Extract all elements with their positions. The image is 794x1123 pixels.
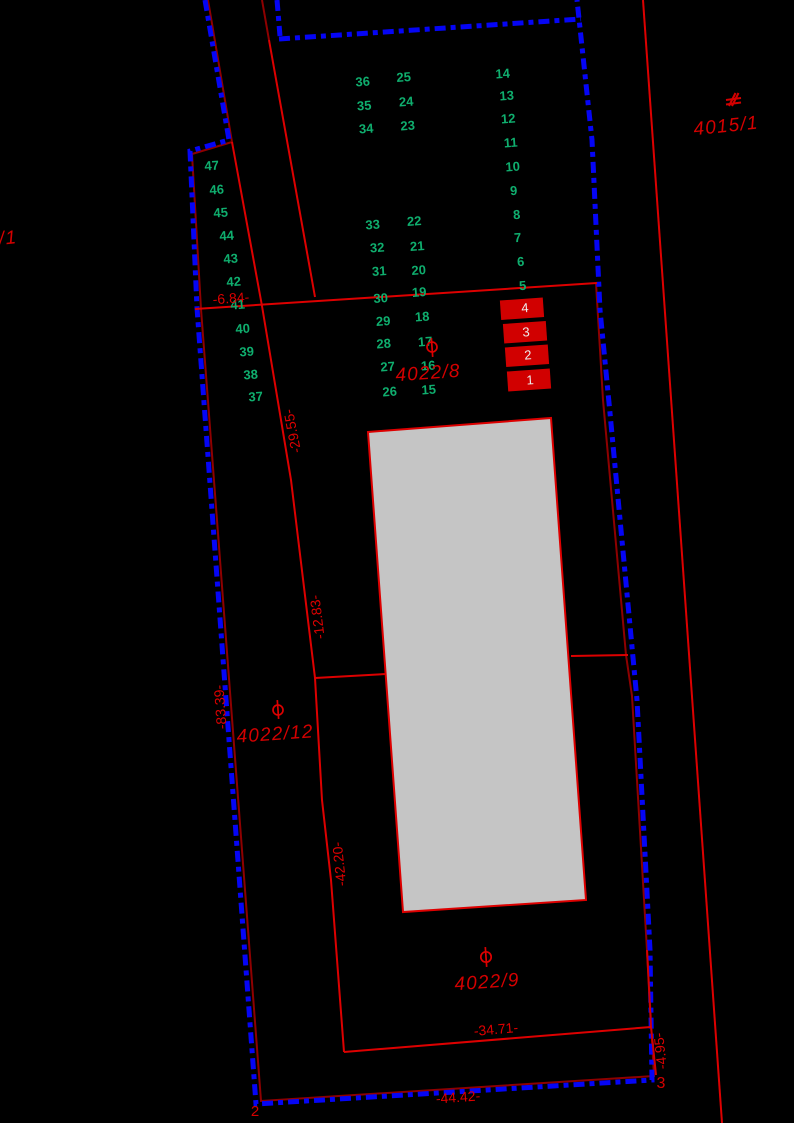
svg-text:34: 34 [358,120,374,136]
svg-text:31: 31 [371,263,386,279]
svg-text:42: 42 [226,274,241,290]
svg-text:36: 36 [355,74,370,90]
svg-text:3: 3 [522,324,530,339]
svg-text:13: 13 [499,88,514,104]
svg-text:2: 2 [524,347,532,362]
svg-text:2: 2 [251,1103,259,1120]
svg-text:-83.39-: -83.39- [210,684,229,730]
svg-text:26: 26 [382,384,397,400]
svg-text:47: 47 [204,158,219,174]
svg-text:44: 44 [219,227,235,243]
svg-text:/1: /1 [0,227,18,250]
svg-text:11: 11 [503,135,518,151]
svg-text:12: 12 [500,111,515,127]
svg-text:3: 3 [657,1075,666,1092]
svg-text:10: 10 [505,159,520,175]
svg-text:-44.42-: -44.42- [435,1087,481,1106]
svg-text:29: 29 [375,313,390,329]
svg-text:40: 40 [235,321,250,337]
svg-text:30: 30 [373,290,388,306]
svg-text:7: 7 [514,230,522,245]
svg-text:37: 37 [248,389,263,405]
svg-text:24: 24 [398,93,414,109]
svg-text:19: 19 [411,284,426,300]
svg-text:35: 35 [356,98,371,114]
svg-text:46: 46 [209,182,224,198]
svg-text:45: 45 [213,205,228,221]
svg-text:33: 33 [365,217,380,233]
svg-text:39: 39 [239,344,254,360]
svg-text:25: 25 [396,69,411,85]
svg-text:8: 8 [513,207,521,222]
svg-text:18: 18 [414,309,429,325]
svg-text:23: 23 [400,118,415,134]
svg-text:9: 9 [510,183,518,198]
svg-text:27: 27 [380,359,395,375]
svg-text:22: 22 [406,213,421,229]
svg-text:14: 14 [495,65,511,81]
svg-text:4: 4 [521,300,529,315]
svg-text:38: 38 [243,367,258,383]
svg-text:43: 43 [223,251,238,267]
svg-text:-6.84-: -6.84- [212,289,250,308]
svg-text:32: 32 [369,240,384,256]
svg-text:1: 1 [526,372,534,387]
svg-text:21: 21 [409,238,424,254]
svg-text:20: 20 [411,262,426,278]
svg-text:28: 28 [376,336,391,352]
svg-text:6: 6 [517,254,525,269]
svg-text:5: 5 [519,278,527,293]
